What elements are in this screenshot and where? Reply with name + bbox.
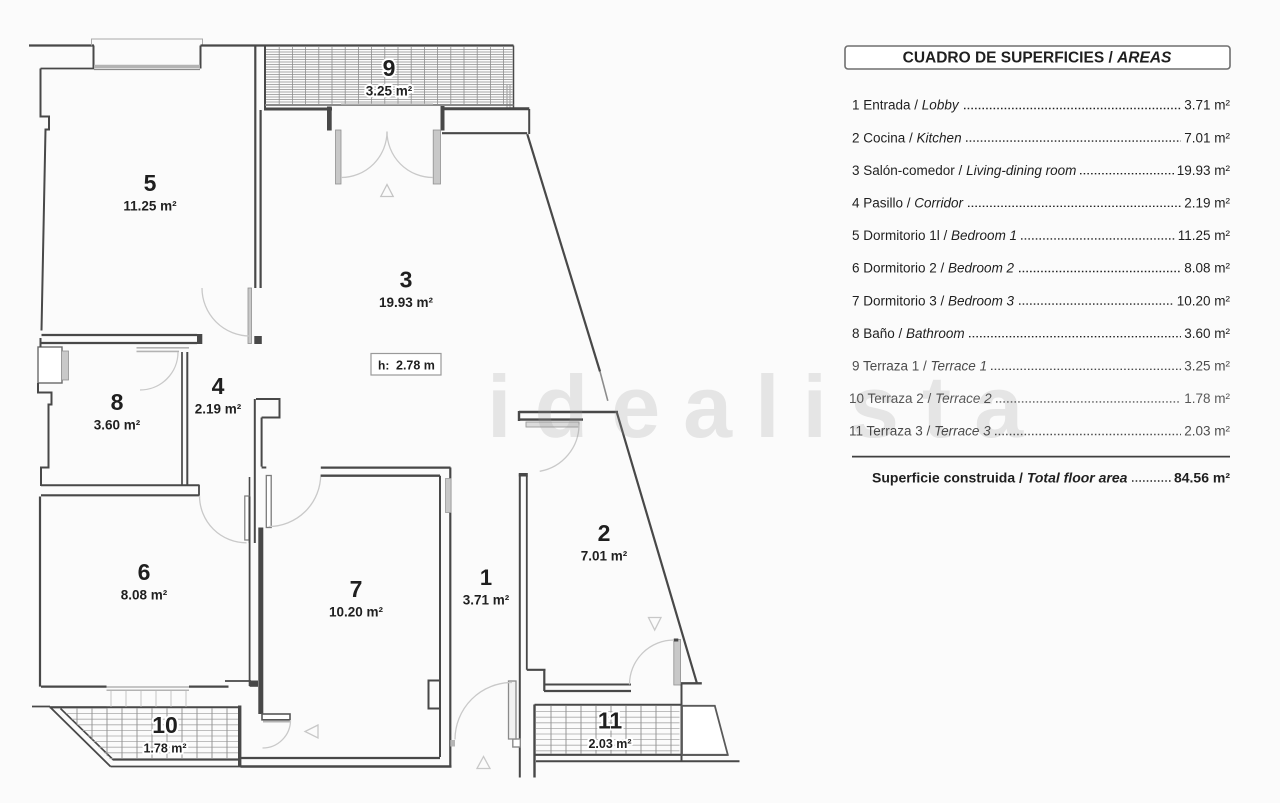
svg-text:19.93 m²: 19.93 m² — [379, 295, 434, 310]
svg-text:10.20 m²: 10.20 m² — [1177, 293, 1231, 308]
svg-text:1.78 m²: 1.78 m² — [1184, 391, 1230, 406]
svg-text:3.60 m²: 3.60 m² — [1184, 326, 1230, 341]
svg-text:11.25 m²: 11.25 m² — [123, 199, 177, 214]
svg-text:3 Salón-comedor / Living-dinin: 3 Salón-comedor / Living-dining room — [852, 163, 1076, 178]
svg-text:Superficie construida / Total: Superficie construida / Total floor area — [872, 469, 1128, 485]
svg-text:CUADRO DE SUPERFICIES / AREAS: CUADRO DE SUPERFICIES / AREAS — [903, 50, 1172, 67]
svg-text:4: 4 — [212, 373, 225, 399]
svg-text:2: 2 — [598, 520, 611, 546]
svg-text:1: 1 — [480, 565, 492, 590]
svg-text:3.71 m²: 3.71 m² — [463, 593, 510, 608]
svg-text:19.93 m²: 19.93 m² — [1177, 163, 1231, 178]
svg-text:2.78 m: 2.78 m — [396, 359, 435, 373]
svg-text:11 Terraza 3 / Terrace 3: 11 Terraza 3 / Terrace 3 — [849, 424, 991, 439]
svg-text:84.56 m²: 84.56 m² — [1174, 469, 1230, 485]
svg-text:1 Entrada / Lobby: 1 Entrada / Lobby — [852, 98, 960, 113]
svg-text:10 Terraza 2 / Terrace 2: 10 Terraza 2 / Terrace 2 — [849, 391, 992, 406]
svg-text:9 Terraza 1 / Terrace 1: 9 Terraza 1 / Terrace 1 — [852, 359, 987, 374]
svg-text:1.78 m²: 1.78 m² — [143, 742, 186, 756]
svg-text:3.25 m²: 3.25 m² — [1184, 359, 1230, 374]
svg-text:7 Dormitorio 3 / Bedroom 3: 7 Dormitorio 3 / Bedroom 3 — [852, 293, 1015, 308]
svg-text:3.60 m²: 3.60 m² — [94, 418, 141, 433]
svg-text:3.25 m²: 3.25 m² — [366, 84, 413, 99]
svg-text:8: 8 — [111, 389, 124, 415]
svg-text:9: 9 — [383, 55, 396, 81]
svg-text:7.01 m²: 7.01 m² — [1184, 130, 1230, 145]
svg-text:8 Baño / Bathroom: 8 Baño / Bathroom — [852, 326, 965, 341]
svg-text:3: 3 — [400, 267, 413, 293]
svg-text:6: 6 — [138, 559, 151, 585]
svg-text:2.03 m²: 2.03 m² — [1184, 424, 1230, 439]
svg-text:8.08 m²: 8.08 m² — [1184, 261, 1230, 276]
svg-text:2.19 m²: 2.19 m² — [1184, 196, 1230, 211]
svg-text:4 Pasillo / Corridor: 4 Pasillo / Corridor — [852, 196, 964, 211]
svg-text:2.19 m²: 2.19 m² — [195, 402, 242, 417]
svg-text:h:: h: — [378, 359, 389, 373]
svg-text:11.25 m²: 11.25 m² — [1178, 228, 1231, 243]
svg-text:2.03 m²: 2.03 m² — [588, 737, 631, 751]
svg-text:3.71 m²: 3.71 m² — [1184, 98, 1230, 113]
svg-text:10.20 m²: 10.20 m² — [329, 605, 384, 620]
svg-text:5 Dormitorio 1l / Bedroom 1: 5 Dormitorio 1l / Bedroom 1 — [852, 228, 1017, 243]
svg-text:10: 10 — [152, 712, 178, 738]
svg-text:6 Dormitorio 2 / Bedroom 2: 6 Dormitorio 2 / Bedroom 2 — [852, 261, 1015, 276]
svg-text:2 Cocina / Kitchen: 2 Cocina / Kitchen — [852, 130, 962, 145]
svg-text:11: 11 — [598, 708, 623, 734]
svg-text:8.08 m²: 8.08 m² — [121, 588, 168, 603]
svg-text:7: 7 — [350, 576, 363, 602]
svg-text:7.01 m²: 7.01 m² — [581, 549, 628, 564]
svg-text:5: 5 — [144, 170, 157, 196]
